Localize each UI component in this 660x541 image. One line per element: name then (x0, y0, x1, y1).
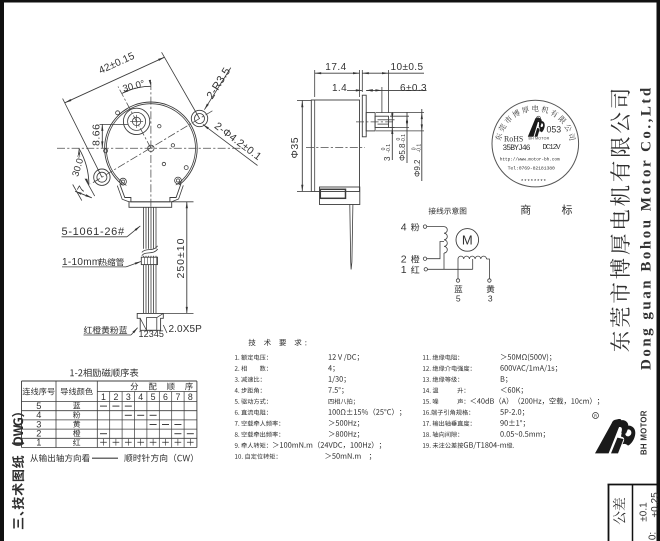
svg-text:Tel:0769-82181380: Tel:0769-82181380 (508, 165, 555, 171)
svg-text:BH MOTOR: BH MOTOR (529, 136, 550, 140)
svg-text:12345: 12345 (139, 329, 165, 339)
svg-text:3: 3 (126, 392, 131, 402)
svg-text:-0.1: -0.1 (401, 134, 407, 143)
svg-text:+0.25: +0.25 (650, 492, 660, 518)
svg-text:********: ******** (521, 179, 547, 185)
svg-text:4: 4 (401, 222, 407, 234)
svg-text:17.4: 17.4 (325, 62, 346, 73)
svg-text:3: 3 (488, 294, 493, 304)
svg-text:Φ9.2: Φ9.2 (413, 159, 422, 177)
svg-text:1: 1 (401, 264, 407, 276)
svg-text:053: 053 (547, 125, 562, 135)
svg-text:8.66: 8.66 (91, 124, 103, 146)
svg-text:3: 3 (383, 156, 392, 161)
svg-text:R: R (594, 413, 597, 418)
svg-text:1-10mm: 1-10mm (62, 257, 100, 268)
svg-text:2.0X5P: 2.0X5P (169, 324, 203, 335)
svg-text:-0.1: -0.1 (416, 144, 422, 153)
svg-text:35BYJ46: 35BYJ46 (502, 144, 530, 153)
svg-text:RoHS: RoHS (504, 135, 523, 144)
svg-text:8: 8 (188, 392, 193, 402)
svg-text:±0.1: ±0.1 (639, 502, 650, 522)
svg-text:1.4: 1.4 (332, 83, 347, 94)
svg-text:Φ5.8: Φ5.8 (398, 143, 407, 161)
svg-text:2: 2 (113, 392, 118, 402)
svg-text:M: M (462, 233, 473, 248)
svg-text:http://www.motor-bh.com: http://www.motor-bh.com (500, 157, 560, 163)
svg-text:Φ35: Φ35 (289, 137, 301, 159)
svg-text:DC12V: DC12V (543, 144, 562, 152)
svg-text:1: 1 (101, 392, 106, 402)
svg-text:5: 5 (151, 392, 156, 402)
svg-text:-0.1: -0.1 (386, 144, 392, 153)
svg-text:250±10: 250±10 (175, 238, 187, 279)
svg-text:0:: 0: (648, 532, 659, 540)
svg-text:10±0.5: 10±0.5 (391, 62, 424, 73)
svg-text:5: 5 (456, 294, 461, 304)
svg-text:BH MOTOR: BH MOTOR (640, 410, 649, 455)
svg-text:6: 6 (163, 392, 168, 402)
svg-text:7: 7 (175, 392, 180, 402)
svg-text:4: 4 (138, 392, 143, 402)
svg-text:1: 1 (36, 438, 41, 448)
svg-text:Dong guan Bohou Motor Co.,Ltd: Dong guan Bohou Motor Co.,Ltd (639, 85, 655, 370)
svg-text:6±0.3: 6±0.3 (400, 83, 427, 94)
svg-text:5-1061-26#: 5-1061-26# (62, 226, 125, 238)
